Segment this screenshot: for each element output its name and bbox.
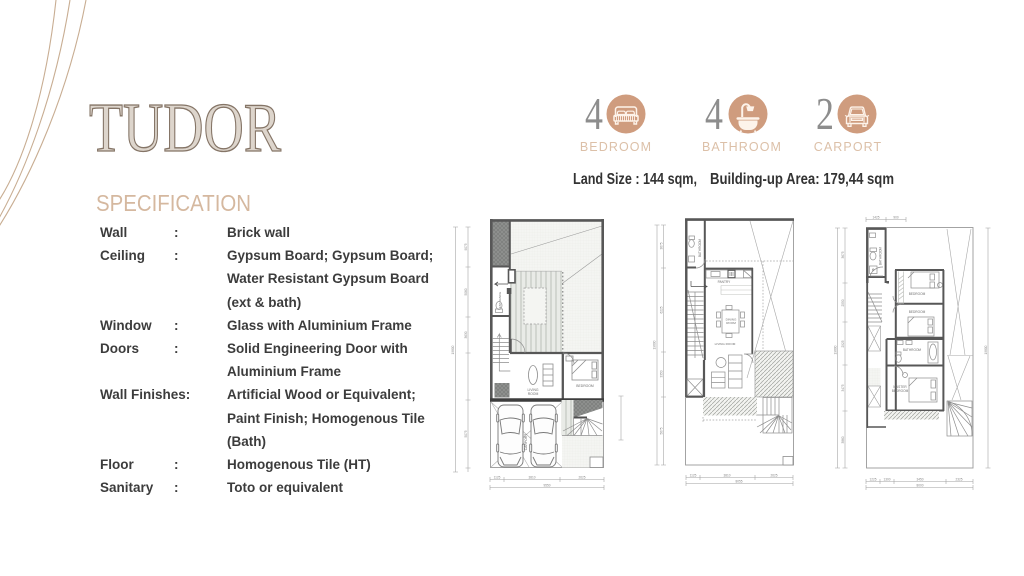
svg-text:1225: 1225 bbox=[869, 478, 876, 482]
svg-text:19800: 19800 bbox=[984, 345, 988, 354]
svg-text:8055: 8055 bbox=[735, 480, 742, 484]
svg-text:BATHROOM: BATHROOM bbox=[879, 247, 883, 266]
svg-text:3810: 3810 bbox=[528, 476, 535, 480]
svg-text:2625: 2625 bbox=[770, 474, 777, 478]
svg-text:CARPORT: CARPORT bbox=[524, 434, 528, 451]
svg-text:2550: 2550 bbox=[841, 299, 845, 306]
svg-text:BEDROOM: BEDROOM bbox=[892, 389, 909, 393]
svg-text:2325: 2325 bbox=[955, 478, 962, 482]
svg-text:3475: 3475 bbox=[841, 384, 845, 391]
svg-text:3860: 3860 bbox=[841, 436, 845, 443]
svg-text:BEDROOM: BEDROOM bbox=[909, 292, 926, 296]
svg-text:3450: 3450 bbox=[916, 478, 923, 482]
svg-text:3810: 3810 bbox=[723, 474, 730, 478]
svg-text:19800: 19800 bbox=[451, 345, 455, 354]
svg-text:5075: 5075 bbox=[464, 430, 468, 437]
svg-text:BATHROOM: BATHROOM bbox=[903, 348, 922, 352]
svg-text:1300: 1300 bbox=[883, 478, 890, 482]
svg-text:8000: 8000 bbox=[916, 484, 923, 488]
svg-text:3675: 3675 bbox=[841, 251, 845, 258]
svg-text:ROOM: ROOM bbox=[726, 321, 736, 325]
svg-text:ENTRANCE: ENTRANCE bbox=[498, 292, 502, 309]
svg-text:BEDROOM: BEDROOM bbox=[576, 384, 594, 388]
svg-text:5675: 5675 bbox=[659, 427, 663, 434]
svg-text:900: 900 bbox=[893, 216, 899, 220]
svg-text:3350: 3350 bbox=[659, 370, 663, 377]
svg-text:LIVING ROOM: LIVING ROOM bbox=[715, 342, 736, 346]
svg-text:3675: 3675 bbox=[659, 242, 663, 249]
svg-text:1125: 1125 bbox=[494, 476, 501, 480]
svg-text:1125: 1125 bbox=[690, 474, 697, 478]
svg-text:3630: 3630 bbox=[464, 331, 468, 338]
svg-text:2925: 2925 bbox=[841, 340, 845, 347]
svg-text:BEDROOM: BEDROOM bbox=[909, 310, 926, 314]
svg-text:6225: 6225 bbox=[659, 306, 663, 313]
svg-text:9075: 9075 bbox=[464, 243, 468, 250]
svg-text:PANTRY: PANTRY bbox=[718, 280, 732, 284]
svg-text:9550: 9550 bbox=[543, 484, 550, 488]
svg-text:2625: 2625 bbox=[578, 476, 585, 480]
svg-text:19800: 19800 bbox=[653, 340, 657, 349]
svg-text:1425: 1425 bbox=[872, 216, 879, 220]
svg-text:5060: 5060 bbox=[464, 288, 468, 295]
svg-text:BATHROOM: BATHROOM bbox=[698, 239, 702, 258]
svg-text:19800: 19800 bbox=[833, 345, 837, 354]
svg-text:ROOM: ROOM bbox=[528, 392, 539, 396]
